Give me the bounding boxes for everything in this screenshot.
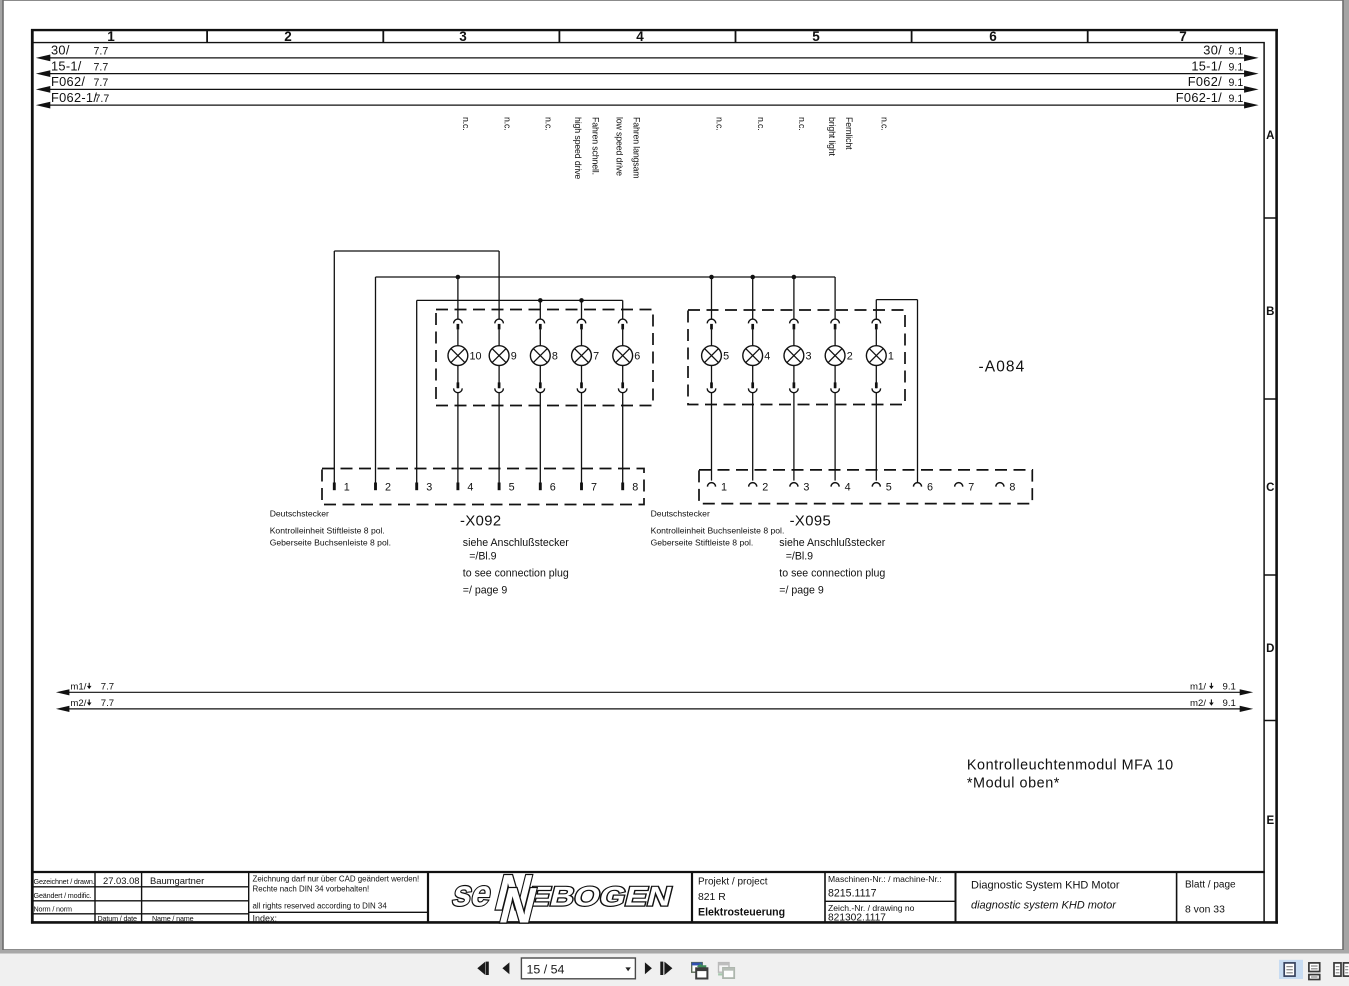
svg-text:to see connection plug: to see connection plug [779, 568, 885, 580]
svg-text:27.03.08: 27.03.08 [103, 875, 140, 886]
svg-text:Elektrosteuerung: Elektrosteuerung [698, 907, 785, 919]
svg-text:2: 2 [385, 482, 391, 494]
svg-text:D: D [1266, 643, 1274, 655]
svg-text:all rights reserved according: all rights reserved according to DIN 34 [253, 902, 388, 911]
svg-text:7.7: 7.7 [94, 61, 109, 73]
svg-text:F062-1/: F062-1/ [1176, 90, 1222, 105]
svg-text:10: 10 [470, 351, 482, 363]
svg-text:*Modul oben*: *Modul oben* [967, 776, 1060, 792]
svg-text:Rechte nach DIN 34 vorbehalten: Rechte nach DIN 34 vorbehalten! [253, 885, 370, 894]
svg-text:high speed drive: high speed drive [573, 117, 583, 179]
svg-text:4: 4 [845, 482, 851, 494]
svg-text:4: 4 [467, 482, 473, 494]
svg-text:5: 5 [886, 482, 892, 494]
svg-text:7: 7 [593, 351, 599, 363]
svg-text:C: C [1266, 482, 1274, 494]
svg-text:siehe Anschlußstecker: siehe Anschlußstecker [463, 537, 569, 549]
svg-text:3: 3 [803, 482, 809, 494]
svg-text:Name / name: Name / name [152, 914, 194, 923]
svg-text:7.7: 7.7 [101, 681, 114, 692]
svg-text:F062-1/: F062-1/ [51, 90, 97, 105]
svg-text:15-1/: 15-1/ [51, 58, 82, 73]
svg-text:Fernlicht: Fernlicht [844, 117, 854, 150]
svg-text:6: 6 [550, 482, 556, 494]
svg-text:8: 8 [1009, 482, 1015, 494]
svg-text:8215.1117: 8215.1117 [828, 888, 877, 900]
svg-text:9.1: 9.1 [1229, 61, 1244, 73]
svg-text:5: 5 [812, 29, 820, 44]
svg-text:=/Bl.9: =/Bl.9 [469, 551, 496, 563]
svg-text:Norm / norm: Norm / norm [34, 905, 72, 914]
svg-text:n.c.: n.c. [461, 117, 471, 131]
svg-text:F062/: F062/ [1188, 74, 1222, 89]
svg-text:Geberseite Buchsenleiste 8 pol: Geberseite Buchsenleiste 8 pol. [270, 538, 391, 548]
svg-text:15 / 54: 15 / 54 [527, 962, 565, 976]
svg-text:Blatt / page: Blatt / page [1185, 880, 1236, 891]
svg-text:Projekt / project: Projekt / project [698, 877, 768, 888]
svg-text:m1/: m1/ [1190, 681, 1206, 692]
svg-text:3: 3 [806, 351, 812, 363]
svg-text:m1/: m1/ [70, 681, 86, 692]
svg-text:1: 1 [344, 482, 350, 494]
svg-text:8: 8 [552, 351, 558, 363]
svg-text:1: 1 [107, 29, 115, 44]
svg-text:Zeichnung darf nur über CAD g: Zeichnung darf nur über CAD geändert wer… [253, 875, 420, 884]
svg-text:6: 6 [634, 351, 640, 363]
svg-text:F062/: F062/ [51, 74, 85, 89]
svg-text:Zeich.-Nr. / drawing no: Zeich.-Nr. / drawing no [828, 903, 915, 913]
svg-text:Geberseite Stiftleiste 8 pol.: Geberseite Stiftleiste 8 pol. [651, 538, 754, 548]
svg-text:Kontrolleinheit Buchsenleiste: Kontrolleinheit Buchsenleiste 8 pol. [651, 526, 785, 536]
svg-text:Baumgartner: Baumgartner [150, 875, 204, 886]
svg-text:5: 5 [509, 482, 515, 494]
svg-text:7.7: 7.7 [95, 93, 110, 105]
svg-text:1: 1 [888, 351, 894, 363]
svg-text:15-1/: 15-1/ [1191, 58, 1222, 73]
svg-text:2: 2 [762, 482, 768, 494]
svg-text:Kontrolleuchtenmodul MFA 10: Kontrolleuchtenmodul MFA 10 [967, 758, 1174, 774]
svg-text:7.7: 7.7 [101, 698, 114, 709]
svg-text:821 R: 821 R [698, 892, 726, 903]
svg-text:4: 4 [764, 351, 770, 363]
svg-text:siehe Anschlußstecker: siehe Anschlußstecker [779, 537, 885, 549]
svg-text:Gezeichnet / drawn.: Gezeichnet / drawn. [34, 877, 95, 886]
svg-text:9: 9 [511, 351, 517, 363]
svg-text:8: 8 [632, 482, 638, 494]
svg-text:7: 7 [1179, 29, 1187, 44]
svg-text:30/: 30/ [51, 43, 70, 58]
svg-text:2: 2 [847, 351, 853, 363]
svg-text:n.c.: n.c. [544, 117, 554, 131]
svg-text:-X095: -X095 [790, 514, 832, 530]
svg-text:n.c.: n.c. [880, 117, 890, 131]
svg-text:=/ page 9: =/ page 9 [463, 585, 508, 597]
svg-text:6: 6 [927, 482, 933, 494]
svg-text:3: 3 [426, 482, 432, 494]
svg-text:Fahren schnell.: Fahren schnell. [590, 117, 600, 175]
svg-text:low speed drive: low speed drive [614, 117, 624, 176]
svg-text:bright light: bright light [827, 117, 837, 156]
svg-text:diagnostic system KHD motor: diagnostic system KHD motor [971, 900, 1117, 912]
svg-text:Datum / date: Datum / date [98, 914, 138, 923]
svg-text:9.1: 9.1 [1223, 698, 1236, 709]
svg-text:9.1: 9.1 [1229, 46, 1244, 58]
svg-text:9.1: 9.1 [1223, 681, 1236, 692]
svg-text:Deutschstecker: Deutschstecker [651, 509, 710, 519]
svg-text:n.c.: n.c. [756, 117, 766, 131]
svg-text:Maschinen-Nr.: / machine-Nr.:: Maschinen-Nr.: / machine-Nr.: [828, 874, 942, 884]
svg-text:Geändert / modific.: Geändert / modific. [34, 891, 92, 900]
svg-text:EBOGEN: EBOGEN [525, 881, 675, 911]
svg-text:B: B [1266, 306, 1274, 318]
svg-text:-A084: -A084 [979, 359, 1026, 376]
svg-text:E: E [1266, 815, 1274, 827]
svg-text:=/ page 9: =/ page 9 [779, 585, 824, 597]
svg-text:8 von 33: 8 von 33 [1185, 905, 1225, 916]
svg-text:Diagnostic System KHD Motor: Diagnostic System KHD Motor [971, 880, 1120, 892]
svg-text:n.c.: n.c. [797, 117, 807, 131]
svg-text:=/Bl.9: =/Bl.9 [786, 551, 813, 563]
svg-text:1: 1 [721, 482, 727, 494]
svg-text:A: A [1266, 130, 1274, 142]
svg-text:n.c.: n.c. [502, 117, 512, 131]
svg-text:5: 5 [723, 351, 729, 363]
svg-text:821302.1117: 821302.1117 [828, 913, 886, 924]
svg-text:Fahren langsam: Fahren langsam [632, 117, 642, 178]
svg-text:Kontrolleinheit Stiftleiste 8: Kontrolleinheit Stiftleiste 8 pol. [270, 526, 385, 536]
svg-text:4: 4 [636, 29, 644, 44]
svg-text:Index:: Index: [253, 914, 278, 924]
svg-text:9.1: 9.1 [1229, 77, 1244, 89]
svg-text:2: 2 [284, 29, 292, 44]
svg-text:n.c.: n.c. [715, 117, 725, 131]
svg-text:-X092: -X092 [460, 514, 502, 530]
svg-text:7.7: 7.7 [94, 46, 109, 58]
svg-text:Deutschstecker: Deutschstecker [270, 509, 329, 519]
svg-text:m2/: m2/ [70, 698, 86, 709]
svg-text:3: 3 [459, 29, 467, 44]
svg-text:m2/: m2/ [1190, 698, 1206, 709]
svg-text:to see connection plug: to see connection plug [463, 568, 569, 580]
svg-text:6: 6 [989, 29, 997, 44]
svg-text:9.1: 9.1 [1229, 93, 1244, 105]
svg-text:7: 7 [591, 482, 597, 494]
svg-text:30/: 30/ [1203, 43, 1222, 58]
svg-text:7: 7 [968, 482, 974, 494]
svg-text:7.7: 7.7 [94, 77, 109, 89]
